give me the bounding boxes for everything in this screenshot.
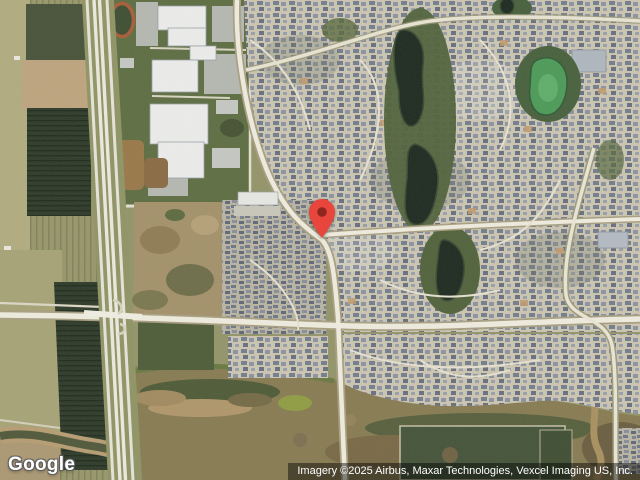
location-pin[interactable] [309,199,335,238]
google-logo[interactable]: Google [8,454,75,476]
imagery-grain [0,0,640,480]
map-viewport[interactable]: Google Imagery ©2025 Airbus, Maxar Techn… [0,0,640,480]
attribution-bar: Imagery ©2025 Airbus, Maxar Technologies… [288,463,640,480]
satellite-imagery [0,0,640,480]
pin-dot [317,207,327,217]
pin-body [309,199,335,238]
location-pin-icon [309,199,335,238]
attribution-text: Imagery ©2025 Airbus, Maxar Technologies… [297,465,633,477]
